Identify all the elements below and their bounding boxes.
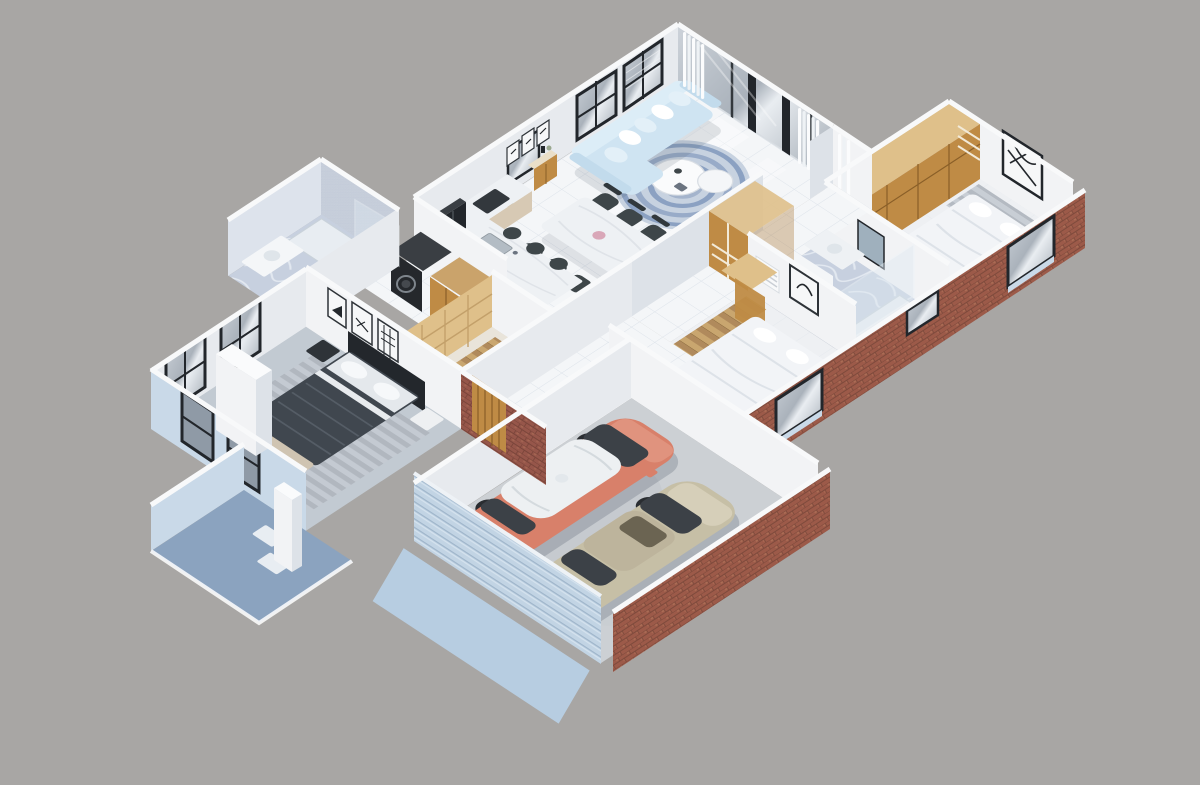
floor-plan-render <box>0 0 1200 785</box>
floor-plan-canvas <box>0 0 1200 785</box>
porch-column <box>274 482 302 572</box>
